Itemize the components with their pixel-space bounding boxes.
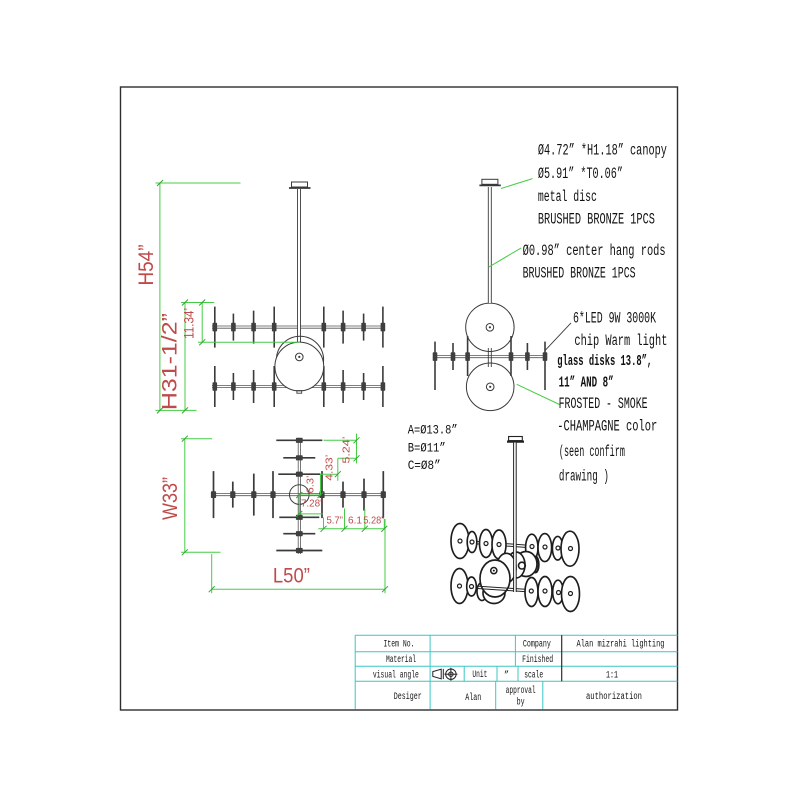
svg-text:7.28”: 7.28” <box>301 498 324 510</box>
svg-text:Company: Company <box>523 639 551 650</box>
svg-text:5.24’: 5.24’ <box>341 437 353 464</box>
svg-text:Ø5.91” *T0.06”: Ø5.91” *T0.06” <box>538 165 623 183</box>
svg-text:6.1: 6.1 <box>348 514 362 526</box>
svg-text:Ø4.72” *H1.18” canopy: Ø4.72” *H1.18” canopy <box>538 142 667 160</box>
svg-text:scale: scale <box>524 669 543 680</box>
svg-text:Ø0.98” center hang rods: Ø0.98” center hang rods <box>523 242 666 260</box>
svg-text:Material: Material <box>386 654 416 665</box>
svg-text:BRUSHED BRONZE 1PCS: BRUSHED BRONZE 1PCS <box>523 265 636 283</box>
svg-text:-CHAMPAGNE color: -CHAMPAGNE color <box>557 418 657 436</box>
svg-text:drawing ): drawing ) <box>559 468 609 486</box>
svg-text:FROSTED - SMOKE: FROSTED - SMOKE <box>559 395 648 413</box>
svg-text:H54”: H54” <box>134 245 158 286</box>
svg-text:chip Warm light: chip Warm light <box>574 332 667 350</box>
svg-text:6*LED 9W 3000K: 6*LED 9W 3000K <box>573 310 656 328</box>
svg-text:authorization: authorization <box>586 691 642 702</box>
svg-text:Alan: Alan <box>465 692 481 703</box>
svg-text:4.33’: 4.33’ <box>323 455 335 481</box>
svg-text:C=Ø8”: C=Ø8” <box>408 458 441 473</box>
svg-text:B=Ø11”: B=Ø11” <box>408 441 446 456</box>
svg-text:glass disks 13.8”,: glass disks 13.8”, <box>557 354 652 370</box>
svg-text:1:1: 1:1 <box>606 669 618 680</box>
svg-text:6.3’: 6.3’ <box>305 476 317 494</box>
svg-text:approval: approval <box>506 685 536 696</box>
svg-text:5.28”: 5.28” <box>363 514 384 526</box>
svg-text:by: by <box>517 696 525 707</box>
svg-text:11” AND 8”: 11” AND 8” <box>559 376 614 392</box>
svg-text:Finished: Finished <box>522 654 553 665</box>
svg-text:Item No.: Item No. <box>384 639 415 650</box>
svg-text:BRUSHED BRONZE 1PCS: BRUSHED BRONZE 1PCS <box>538 211 655 229</box>
svg-text:metal disc: metal disc <box>538 188 597 206</box>
svg-text:11.34’: 11.34’ <box>182 308 197 339</box>
svg-text:A=Ø13.8”: A=Ø13.8” <box>408 423 458 438</box>
svg-text:Alan mizrahi lighting: Alan mizrahi lighting <box>577 639 665 650</box>
svg-text:”: ” <box>504 670 509 681</box>
svg-text:5.7”: 5.7” <box>326 514 343 526</box>
svg-text:(seen confirm: (seen confirm <box>559 443 625 461</box>
svg-text:Unit: Unit <box>472 669 487 680</box>
svg-text:H31-1/2”: H31-1/2” <box>158 313 182 410</box>
svg-text:W33”: W33” <box>158 477 182 520</box>
svg-text:L50”: L50” <box>273 563 310 587</box>
svg-text:Desiger: Desiger <box>394 691 422 702</box>
svg-text:visual angle: visual angle <box>373 669 419 680</box>
